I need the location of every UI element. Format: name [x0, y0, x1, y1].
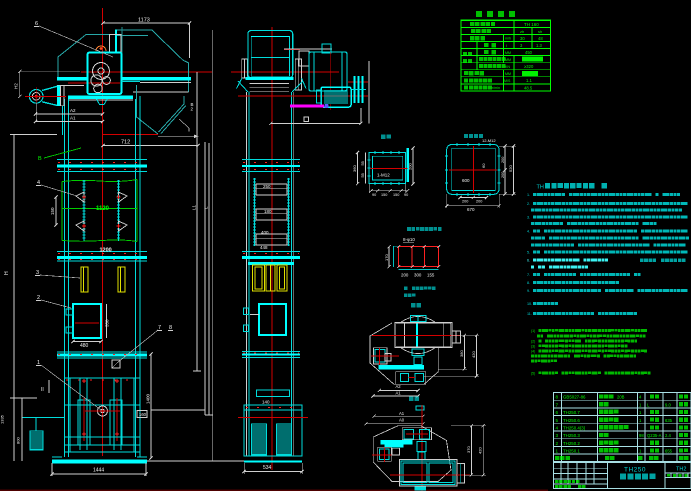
svg-text:1: 1 [37, 360, 40, 366]
svg-text:(1): (1) [531, 329, 535, 333]
svg-text:TH: TH [537, 185, 544, 191]
svg-text:1173: 1173 [138, 18, 150, 24]
svg-text:TH250.6: TH250.6 [563, 418, 580, 423]
svg-text:(2): (2) [531, 339, 535, 343]
svg-text:l: l [506, 43, 507, 48]
svg-text:r/min: r/min [492, 86, 500, 90]
svg-text:1400: 1400 [146, 393, 151, 404]
svg-text:360: 360 [352, 165, 357, 172]
svg-text:3: 3 [556, 433, 559, 438]
svg-text:MM: MM [505, 72, 511, 76]
svg-text:150: 150 [381, 193, 387, 197]
svg-text:9.0: 9.0 [665, 402, 671, 407]
svg-text:2.4: 2.4 [665, 433, 671, 438]
svg-text:2: 2 [556, 441, 559, 446]
svg-text:8: 8 [556, 395, 559, 400]
svg-text:6.: 6. [527, 259, 530, 263]
svg-text:712: 712 [121, 140, 130, 146]
svg-text:1.3: 1.3 [536, 43, 542, 48]
svg-text:10.: 10. [527, 302, 532, 306]
svg-text:48: 48 [538, 36, 543, 41]
svg-text:4.: 4. [527, 230, 530, 234]
svg-text:1444: 1444 [93, 468, 104, 474]
svg-text:60: 60 [481, 163, 486, 168]
svg-text:4: 4 [556, 426, 559, 431]
svg-text:200: 200 [476, 200, 482, 204]
svg-text:TH250.4(3): TH250.4(3) [563, 426, 586, 431]
svg-text:350: 350 [105, 319, 110, 327]
svg-text:520: 520 [508, 165, 513, 172]
svg-text:A2: A2 [396, 384, 402, 389]
svg-text:200: 200 [501, 172, 505, 178]
svg-text:1200: 1200 [100, 248, 112, 254]
svg-text:370: 370 [466, 446, 471, 453]
svg-text:1120: 1120 [96, 206, 110, 212]
svg-text:TH250: TH250 [624, 467, 646, 474]
svg-text:9.: 9. [527, 289, 530, 293]
svg-text:450: 450 [525, 50, 533, 55]
svg-text:8.: 8. [527, 281, 530, 285]
svg-text:30: 30 [520, 36, 525, 41]
svg-text:150: 150 [50, 207, 55, 215]
svg-text:H: H [4, 271, 10, 275]
svg-text:600: 600 [462, 178, 470, 183]
svg-text:A1: A1 [399, 411, 405, 416]
svg-text:12-M12: 12-M12 [482, 138, 496, 143]
svg-text:300: 300 [414, 273, 422, 278]
svg-text:2: 2 [37, 295, 40, 301]
svg-text:7.: 7. [527, 273, 530, 277]
svg-text:B: B [38, 156, 42, 162]
svg-text:(3): (3) [531, 344, 535, 348]
svg-text:420: 420 [478, 447, 483, 454]
svg-text:670: 670 [467, 207, 475, 212]
svg-text:8: 8 [169, 325, 172, 331]
svg-text:48.5: 48.5 [524, 85, 533, 90]
svg-text:sh: sh [538, 29, 542, 34]
svg-text:6: 6 [35, 21, 38, 27]
svg-text:1.1: 1.1 [526, 78, 532, 83]
svg-text:(5): (5) [531, 371, 535, 375]
svg-text:m/h: m/h [505, 37, 511, 41]
svg-text:380: 380 [459, 350, 464, 357]
svg-text:800: 800 [16, 437, 21, 444]
svg-text:5.: 5. [527, 251, 530, 255]
svg-text:4: 4 [37, 180, 40, 186]
svg-text:98: 98 [639, 433, 644, 438]
svg-text:1.: 1. [527, 193, 530, 197]
svg-text:KN: KN [505, 65, 510, 69]
svg-text:420: 420 [471, 351, 476, 358]
svg-text:TH250.3: TH250.3 [563, 433, 580, 438]
svg-text:170: 170 [384, 254, 389, 261]
svg-text:7: 7 [556, 402, 559, 407]
svg-text:8-φ10: 8-φ10 [403, 237, 415, 242]
svg-text:TH250.7: TH250.7 [563, 410, 580, 415]
svg-text:TH250.1: TH250.1 [563, 449, 580, 454]
svg-text:TH250.2: TH250.2 [563, 441, 580, 446]
svg-text:1335: 1335 [0, 414, 5, 424]
svg-text:II: II [41, 387, 44, 393]
svg-text:90: 90 [404, 193, 408, 197]
svg-text:A0: A0 [399, 418, 405, 423]
svg-text:200: 200 [501, 157, 505, 163]
svg-text:3.: 3. [527, 216, 530, 220]
svg-text:zh: zh [520, 29, 524, 34]
svg-text:A1: A1 [70, 116, 76, 121]
svg-text:200: 200 [401, 273, 409, 278]
svg-text:534: 534 [263, 465, 272, 471]
svg-text:MM: MM [505, 51, 511, 55]
svg-text:2.: 2. [527, 202, 530, 206]
svg-text:90: 90 [372, 193, 376, 197]
svg-text:480: 480 [80, 343, 89, 349]
svg-text:250: 250 [263, 184, 271, 189]
svg-text:M/S: M/S [504, 79, 511, 83]
svg-text:55: 55 [361, 161, 365, 165]
svg-text:L1: L1 [192, 204, 197, 210]
svg-text:TH 160: TH 160 [524, 22, 539, 27]
svg-text:1-M12: 1-M12 [377, 173, 390, 178]
svg-text:20B: 20B [617, 395, 625, 400]
svg-text:155: 155 [427, 273, 435, 278]
svg-text:(4): (4) [531, 349, 535, 353]
svg-text:200: 200 [408, 163, 413, 170]
svg-text:3: 3 [36, 270, 39, 276]
svg-text:180: 180 [264, 209, 272, 214]
svg-text:≥320: ≥320 [524, 64, 534, 69]
svg-text:A1: A1 [396, 391, 402, 396]
svg-text:6: 6 [556, 410, 559, 415]
svg-text:11.: 11. [527, 312, 532, 316]
svg-text:TH2: TH2 [676, 467, 686, 473]
svg-text:655: 655 [665, 449, 673, 454]
svg-text:150: 150 [393, 193, 399, 197]
svg-text:635: 635 [665, 418, 673, 423]
svg-text:Q235-A: Q235-A [647, 433, 662, 438]
svg-text:7: 7 [158, 325, 161, 331]
svg-text:200: 200 [462, 200, 468, 204]
svg-text:GB5027-86: GB5027-86 [563, 395, 586, 400]
svg-text:5: 5 [556, 418, 559, 423]
svg-text:55: 55 [361, 173, 365, 177]
svg-text:400: 400 [261, 230, 269, 235]
svg-text:140: 140 [262, 400, 270, 405]
svg-text:1: 1 [556, 449, 559, 454]
svg-text:MM: MM [505, 58, 511, 62]
svg-text:H2: H2 [14, 83, 19, 89]
svg-text:160: 160 [139, 412, 147, 417]
svg-text:448: 448 [260, 245, 268, 250]
svg-text:A2: A2 [70, 108, 76, 113]
